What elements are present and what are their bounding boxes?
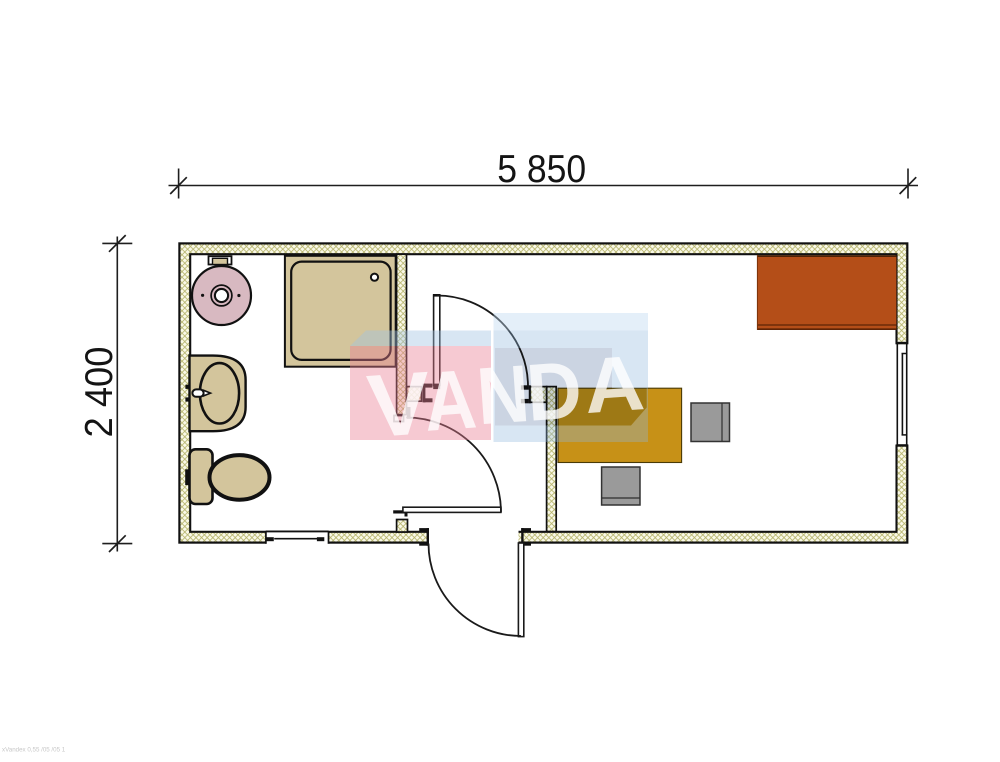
svg-text:A: A [581, 338, 647, 430]
svg-text:D: D [524, 345, 585, 439]
svg-text:5 850: 5 850 [497, 148, 586, 191]
svg-text:xVandex 0,55 /05 /05 1: xVandex 0,55 /05 /05 1 [2, 747, 66, 754]
svg-text:A: A [421, 351, 479, 448]
svg-text:N: N [474, 349, 532, 442]
svg-text:2 400: 2 400 [78, 347, 121, 438]
